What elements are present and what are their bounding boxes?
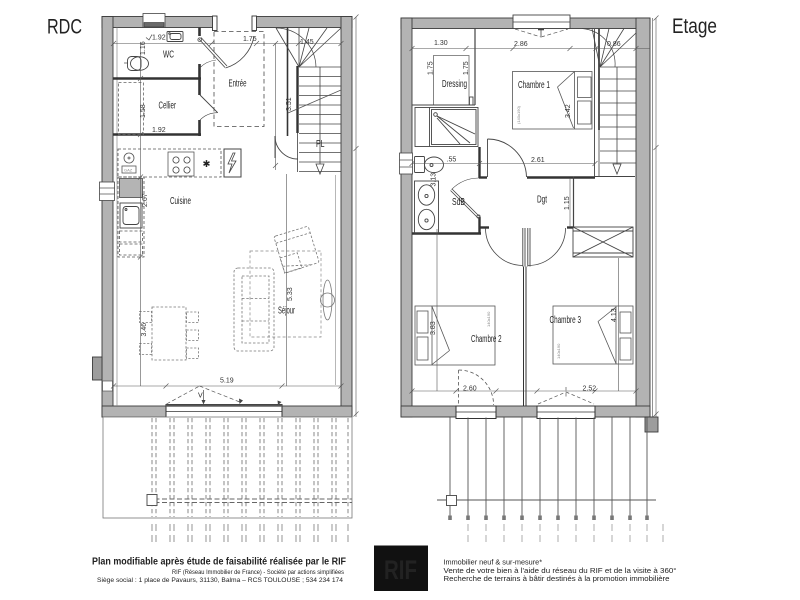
svg-text:1.92: 1.92 bbox=[152, 127, 166, 134]
svg-text:140x190: 140x190 bbox=[556, 343, 561, 359]
svg-text:Cellier: Cellier bbox=[159, 101, 177, 112]
svg-text:Plan modifiable après étude de: Plan modifiable après étude de faisabili… bbox=[92, 557, 346, 568]
svg-text:2.52: 2.52 bbox=[583, 386, 597, 393]
svg-text:Chambre 2: Chambre 2 bbox=[471, 334, 502, 345]
svg-text:1.45: 1.45 bbox=[300, 39, 314, 46]
svg-text:2.86: 2.86 bbox=[514, 41, 528, 48]
svg-text:(140x190): (140x190) bbox=[516, 105, 521, 124]
svg-text:1.75: 1.75 bbox=[428, 61, 435, 75]
svg-text:Chambre 3: Chambre 3 bbox=[550, 315, 582, 326]
svg-text:2.60: 2.60 bbox=[463, 386, 477, 393]
svg-text:GAZ: GAZ bbox=[124, 168, 133, 173]
svg-text:4.13: 4.13 bbox=[611, 308, 618, 322]
svg-text:3.13: 3.13 bbox=[431, 173, 438, 187]
svg-text:✱: ✱ bbox=[203, 159, 211, 170]
svg-text:V: V bbox=[198, 393, 203, 400]
svg-text:3.83: 3.83 bbox=[430, 321, 437, 335]
svg-text:RIF (Réseau Immobilier de Fran: RIF (Réseau Immobilier de France) - Soci… bbox=[172, 569, 345, 576]
svg-text:Cuisine: Cuisine bbox=[170, 196, 191, 207]
svg-text:1.92: 1.92 bbox=[152, 35, 166, 42]
svg-text:0.86: 0.86 bbox=[607, 41, 621, 48]
svg-text:Entrée: Entrée bbox=[229, 79, 247, 90]
svg-text:3.46: 3.46 bbox=[141, 323, 148, 337]
svg-text:Siège social : 1 place de Pava: Siège social : 1 place de Pavaurs, 31130… bbox=[97, 577, 343, 584]
svg-text:1.15: 1.15 bbox=[564, 196, 571, 210]
svg-text:Dgt: Dgt bbox=[537, 195, 547, 206]
svg-text:Recherche de terrains à bâtir: Recherche de terrains à bâtir destinés à… bbox=[444, 574, 670, 583]
svg-text:RDC: RDC bbox=[47, 16, 82, 39]
svg-text:1.16: 1.16 bbox=[140, 41, 147, 55]
svg-text:Dressing: Dressing bbox=[442, 79, 467, 90]
svg-text:3.51: 3.51 bbox=[286, 97, 293, 111]
svg-text:5.33: 5.33 bbox=[287, 287, 294, 301]
svg-text:5.19: 5.19 bbox=[220, 378, 234, 385]
svg-text:140x190: 140x190 bbox=[486, 311, 491, 327]
svg-text:3.42: 3.42 bbox=[565, 104, 572, 118]
svg-text:1.75: 1.75 bbox=[463, 61, 470, 75]
svg-text:Chambre 1: Chambre 1 bbox=[518, 80, 550, 91]
svg-text:Etage: Etage bbox=[672, 15, 717, 38]
svg-text:1.75: 1.75 bbox=[243, 36, 257, 43]
svg-text:1.58: 1.58 bbox=[140, 104, 147, 118]
svg-text:SdB: SdB bbox=[452, 197, 465, 208]
svg-text:WC: WC bbox=[163, 50, 174, 61]
svg-text:RIF: RIF bbox=[384, 555, 417, 585]
svg-text:2.67: 2.67 bbox=[142, 193, 149, 207]
svg-text:PL: PL bbox=[316, 139, 325, 150]
svg-text:.55: .55 bbox=[447, 157, 457, 164]
svg-text:1.30: 1.30 bbox=[434, 40, 448, 47]
svg-text:2.61: 2.61 bbox=[531, 157, 545, 164]
